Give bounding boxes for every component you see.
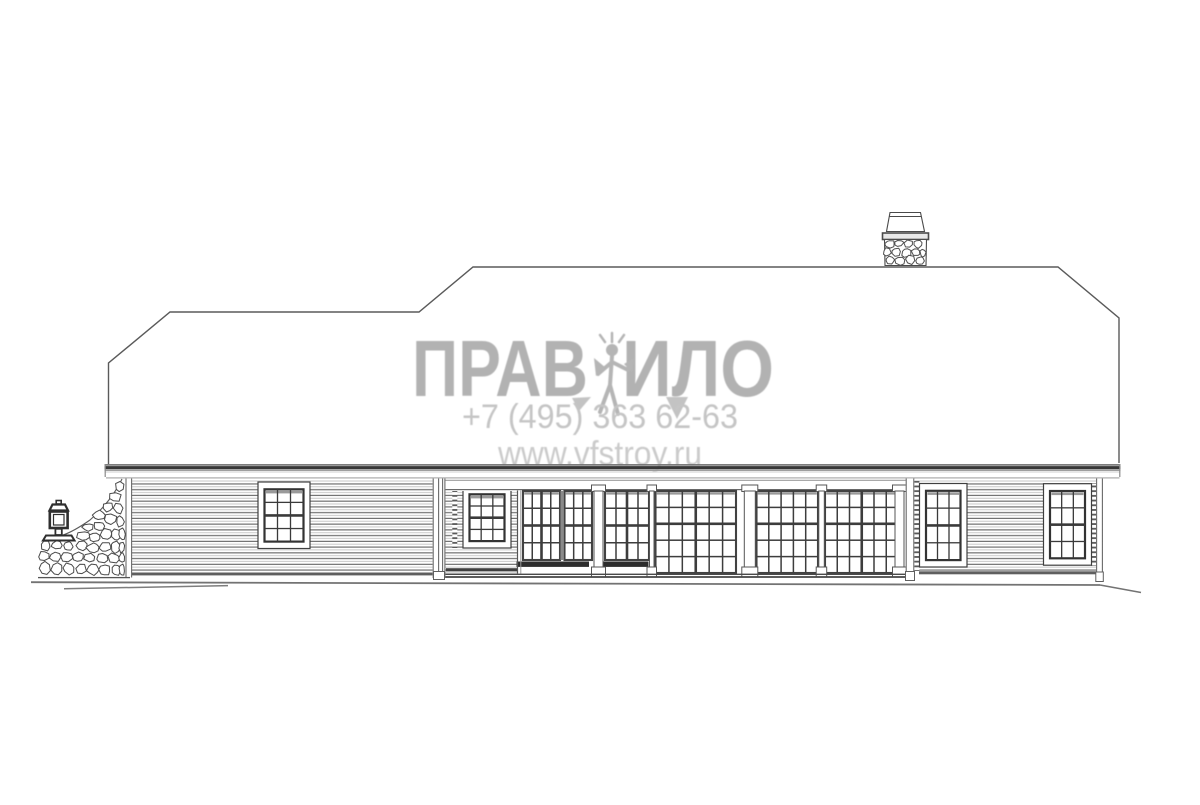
svg-text:+7 (495) 363 62-63: +7 (495) 363 62-63	[462, 398, 738, 436]
